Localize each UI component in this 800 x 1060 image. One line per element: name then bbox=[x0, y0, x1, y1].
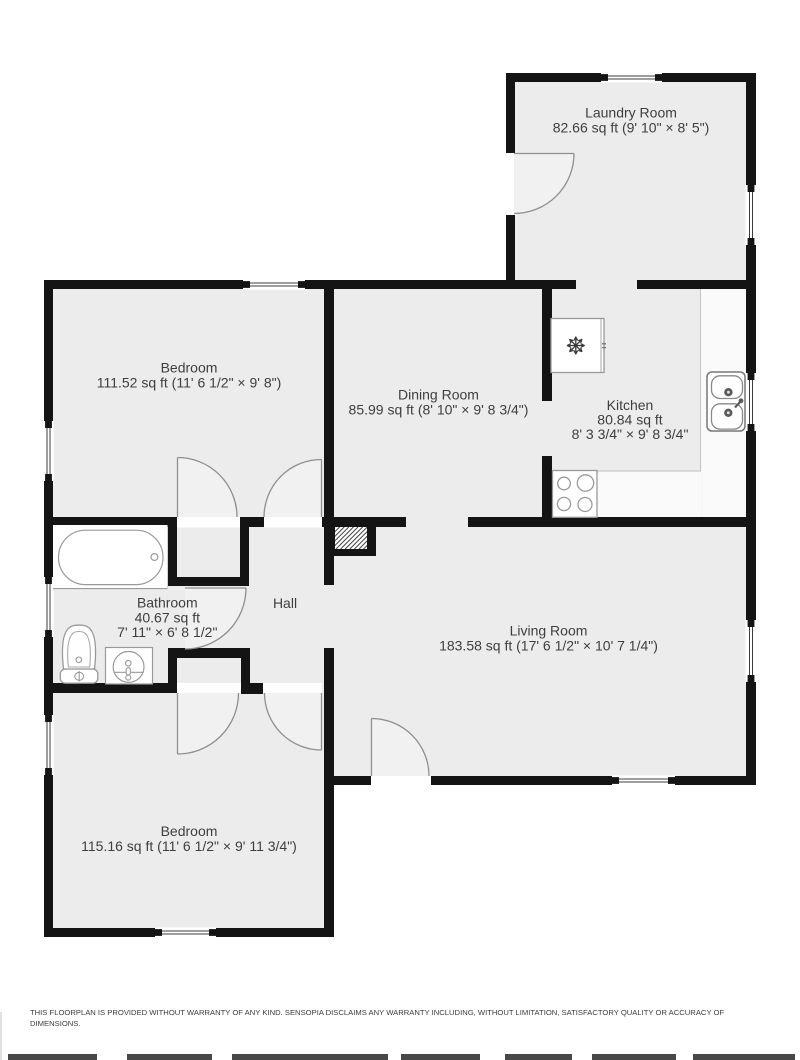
svg-text:8' 3 3/4" × 9' 8 3/4": 8' 3 3/4" × 9' 8 3/4" bbox=[572, 426, 689, 442]
svg-text:Bedroom: Bedroom bbox=[161, 823, 218, 839]
svg-text:DIMENSIONS.: DIMENSIONS. bbox=[30, 1019, 81, 1028]
svg-text:115.16 sq ft (11' 6 1/2" × 9': 115.16 sq ft (11' 6 1/2" × 9' 11 3/4") bbox=[81, 838, 297, 854]
svg-text:80.84 sq ft: 80.84 sq ft bbox=[597, 412, 662, 428]
svg-text:Bathroom: Bathroom bbox=[137, 595, 198, 611]
svg-text:THIS FLOORPLAN IS PROVIDED WIT: THIS FLOORPLAN IS PROVIDED WITHOUT WARRA… bbox=[30, 1008, 724, 1017]
svg-text:82.66 sq ft (9' 10" × 8' 5"): 82.66 sq ft (9' 10" × 8' 5") bbox=[553, 120, 710, 136]
svg-text:183.58 sq ft (17' 6 1/2" × 10': 183.58 sq ft (17' 6 1/2" × 10' 7 1/4") bbox=[439, 638, 658, 654]
svg-text:Dining Room: Dining Room bbox=[398, 387, 479, 403]
svg-text:7' 11" × 6' 8 1/2": 7' 11" × 6' 8 1/2" bbox=[117, 624, 217, 640]
svg-text:Laundry Room: Laundry Room bbox=[585, 105, 677, 121]
svg-text:Hall: Hall bbox=[273, 595, 297, 611]
svg-text:85.99 sq ft (8' 10" × 9' 8 3/4: 85.99 sq ft (8' 10" × 9' 8 3/4") bbox=[349, 402, 529, 418]
svg-text:Kitchen: Kitchen bbox=[607, 397, 654, 413]
svg-text:111.52 sq ft (11' 6 1/2" × 9': 111.52 sq ft (11' 6 1/2" × 9' 8") bbox=[97, 375, 282, 391]
svg-text:Bedroom: Bedroom bbox=[161, 360, 218, 376]
svg-text:Living Room: Living Room bbox=[510, 623, 588, 639]
